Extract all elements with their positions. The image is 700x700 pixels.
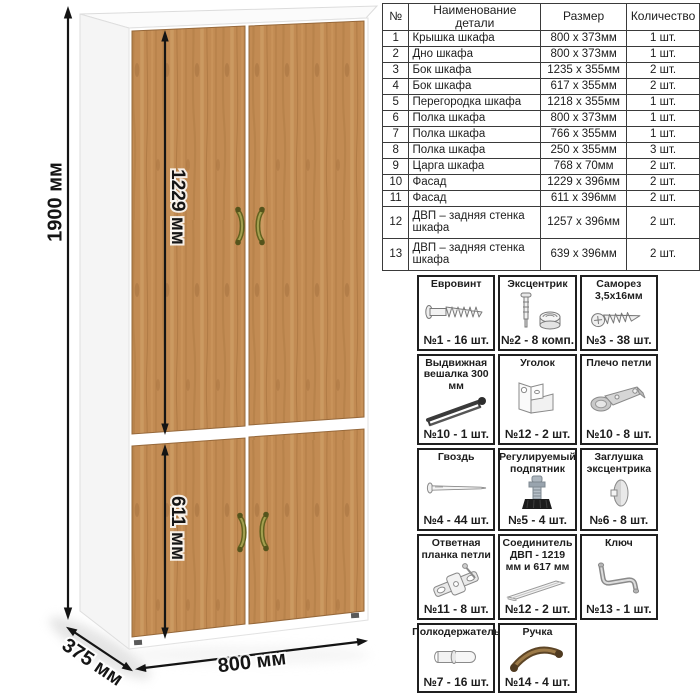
cabinet-side-panel bbox=[80, 14, 129, 649]
hardware-item-excentrik: Эксцентрик №2 - 8 комп. bbox=[498, 275, 576, 351]
part-name: Фасад bbox=[409, 190, 541, 206]
part-size: 617 x 355мм bbox=[541, 78, 627, 94]
table-row: 7 Полка шкафа 766 x 355мм 1 шт. bbox=[383, 126, 700, 142]
table-row: 3 Бок шкафа 1235 x 355мм 2 шт. bbox=[383, 62, 700, 78]
hardware-count: №2 - 8 комп. bbox=[501, 333, 574, 347]
table-row: 2 Дно шкафа 800 x 373мм 1 шт. bbox=[383, 46, 700, 62]
hardware-item-podpyatnik: Регулируемый подпятник №5 - 4 шт. bbox=[498, 448, 576, 532]
table-row: 5 Перегородка шкафа 1218 x 355мм 1 шт. bbox=[383, 94, 700, 110]
part-num: 7 bbox=[383, 126, 409, 142]
hardware-item-veshalka: Выдвижная вешалка 300 мм №10 - 1 шт. bbox=[417, 354, 495, 445]
shelf-pin-icon bbox=[420, 639, 492, 675]
hardware-count: №4 - 44 шт. bbox=[423, 513, 489, 527]
hardware-count: №13 - 1 шт. bbox=[586, 602, 652, 616]
part-num: 2 bbox=[383, 46, 409, 62]
part-qty: 1 шт. bbox=[627, 94, 700, 110]
hardware-count: №14 - 4 шт. bbox=[505, 675, 571, 689]
part-name: Царга шкафа bbox=[409, 158, 541, 174]
part-name: Фасад bbox=[409, 174, 541, 190]
part-num: 11 bbox=[383, 190, 409, 206]
part-qty: 1 шт. bbox=[627, 110, 700, 126]
part-name: Перегородка шкафа bbox=[409, 94, 541, 110]
hardware-count: №5 - 4 шт. bbox=[508, 513, 567, 527]
hardware-title: Эксцентрик bbox=[507, 279, 567, 291]
part-name: Крышка шкафа bbox=[409, 30, 541, 46]
table-row: 4 Бок шкафа 617 x 355мм 2 шт. bbox=[383, 78, 700, 94]
part-qty: 2 шт. bbox=[627, 190, 700, 206]
hardware-title: Ответная планка петли bbox=[420, 538, 492, 562]
nail-icon bbox=[420, 464, 492, 514]
part-size: 800 x 373мм bbox=[541, 46, 627, 62]
lower-right-door bbox=[249, 429, 364, 624]
part-size: 1229 x 396мм bbox=[541, 174, 627, 190]
pull-out-hanger-icon bbox=[420, 393, 492, 427]
part-num: 6 bbox=[383, 110, 409, 126]
part-qty: 1 шт. bbox=[627, 46, 700, 62]
table-row: 12 ДВП – задняя стенка шкафа 1257 x 396м… bbox=[383, 206, 700, 238]
part-name: Полка шкафа bbox=[409, 142, 541, 158]
corner-bracket-icon bbox=[501, 369, 573, 427]
hardware-title: Гвоздь bbox=[438, 452, 475, 464]
adjustable-foot-icon bbox=[501, 475, 573, 513]
part-num: 10 bbox=[383, 174, 409, 190]
part-num: 13 bbox=[383, 238, 409, 270]
hardware-count: №12 - 2 шт. bbox=[505, 427, 571, 441]
hardware-count: №12 - 2 шт. bbox=[505, 602, 571, 616]
upper-facade-label: 1229 мм bbox=[167, 169, 188, 245]
part-num: 9 bbox=[383, 158, 409, 174]
hardware-title: Выдвижная вешалка 300 мм bbox=[420, 358, 492, 393]
lower-facade-label: 611 мм bbox=[167, 496, 188, 560]
table-row: 10 Фасад 1229 x 396мм 2 шт. bbox=[383, 174, 700, 190]
cam-cover-icon bbox=[583, 475, 655, 513]
part-size: 766 x 355мм bbox=[541, 126, 627, 142]
hardware-item-eurovint: Евровинт №1 - 16 шт. bbox=[417, 275, 495, 351]
part-qty: 3 шт. bbox=[627, 142, 700, 158]
cabinet-foot bbox=[351, 613, 359, 619]
part-name: Полка шкафа bbox=[409, 126, 541, 142]
part-size: 611 x 396мм bbox=[541, 190, 627, 206]
hardware-item-soedinitel: Соединитель ДВП - 1219 мм и 617 мм №12 -… bbox=[498, 534, 576, 620]
hinge-arm-icon bbox=[583, 369, 655, 427]
hardware-count: №1 - 16 шт. bbox=[423, 333, 489, 347]
hardware-count: №11 - 8 шт. bbox=[424, 602, 489, 616]
header-num: № bbox=[383, 4, 409, 31]
part-num: 1 bbox=[383, 30, 409, 46]
hardware-count: №10 - 1 шт. bbox=[423, 427, 489, 441]
hardware-item-polkoderzhatel: Полкодержатель №7 - 16 шт. bbox=[417, 623, 495, 693]
hardware-title: Полкодержатель bbox=[412, 627, 500, 639]
part-name: Бок шкафа bbox=[409, 62, 541, 78]
hdf-connector-icon bbox=[501, 574, 573, 602]
part-qty: 1 шт. bbox=[627, 30, 700, 46]
upper-right-door bbox=[249, 21, 364, 425]
handle-icon bbox=[501, 639, 573, 675]
part-qty: 2 шт. bbox=[627, 174, 700, 190]
hardware-item-zaglushka: Заглушка эксцентрика №6 - 8 шт. bbox=[580, 448, 658, 532]
part-size: 768 x 70мм bbox=[541, 158, 627, 174]
part-size: 250 x 355мм bbox=[541, 142, 627, 158]
hardware-title: Саморез 3,5х16мм bbox=[583, 279, 655, 303]
part-size: 800 x 373мм bbox=[541, 30, 627, 46]
part-num: 4 bbox=[383, 78, 409, 94]
table-row: 13 ДВП – задняя стенка шкафа 639 x 396мм… bbox=[383, 238, 700, 270]
part-size: 639 x 396мм bbox=[541, 238, 627, 270]
part-num: 8 bbox=[383, 142, 409, 158]
part-size: 800 x 373мм bbox=[541, 110, 627, 126]
wardrobe-drawing: 1900 мм 1229 мм 611 мм 800 мм 375 мм bbox=[0, 0, 420, 700]
height-dimension: 1900 мм bbox=[44, 6, 72, 620]
part-size: 1218 x 355мм bbox=[541, 94, 627, 110]
hex-key-icon bbox=[583, 550, 655, 602]
table-row: 9 Царга шкафа 768 x 70мм 2 шт. bbox=[383, 158, 700, 174]
cabinet-foot bbox=[134, 640, 142, 646]
hardware-item-otvetnaya-planka: Ответная планка петли №11 - 8 шт. bbox=[417, 534, 495, 620]
part-qty: 1 шт. bbox=[627, 126, 700, 142]
hardware-item-gvozd: Гвоздь №4 - 44 шт. bbox=[417, 448, 495, 532]
hardware-item-ruchka: Ручка №14 - 4 шт. bbox=[498, 623, 576, 693]
part-name: ДВП – задняя стенка шкафа bbox=[409, 206, 541, 238]
hardware-title: Заглушка эксцентрика bbox=[583, 452, 655, 476]
hardware-count: №6 - 8 шт. bbox=[589, 513, 648, 527]
table-row: 8 Полка шкафа 250 x 355мм 3 шт. bbox=[383, 142, 700, 158]
hardware-count: №3 - 38 шт. bbox=[586, 333, 652, 347]
part-num: 5 bbox=[383, 94, 409, 110]
parts-table: № Наименование детали Размер Количество … bbox=[382, 3, 700, 271]
hardware-title: Ключ bbox=[605, 538, 633, 550]
hardware-item-klyuch: Ключ №13 - 1 шт. bbox=[580, 534, 658, 620]
hardware-item-samorez: Саморез 3,5х16мм №3 - 38 шт. bbox=[580, 275, 658, 351]
cam-lock-icon bbox=[501, 291, 573, 333]
hardware-item-plecho-petli: Плечо петли №10 - 8 шт. bbox=[580, 354, 658, 445]
part-num: 3 bbox=[383, 62, 409, 78]
part-qty: 2 шт. bbox=[627, 78, 700, 94]
part-qty: 2 шт. bbox=[627, 62, 700, 78]
part-size: 1257 x 396мм bbox=[541, 206, 627, 238]
hardware-count: №10 - 8 шт. bbox=[586, 427, 652, 441]
assembly-sheet: { "wardrobe": { "dimensions": { "height"… bbox=[0, 0, 700, 700]
header-size: Размер bbox=[541, 4, 627, 31]
hardware-grid: Евровинт №1 - 16 шт. Эксцентрик bbox=[417, 275, 658, 677]
part-qty: 2 шт. bbox=[627, 206, 700, 238]
hardware-title: Евровинт bbox=[431, 279, 482, 291]
part-qty: 2 шт. bbox=[627, 238, 700, 270]
part-name: Бок шкафа bbox=[409, 78, 541, 94]
table-row: 11 Фасад 611 x 396мм 2 шт. bbox=[383, 190, 700, 206]
self-tapping-screw-icon bbox=[583, 303, 655, 333]
hardware-title: Уголок bbox=[520, 358, 555, 370]
height-label: 1900 мм bbox=[44, 162, 66, 242]
part-num: 12 bbox=[383, 206, 409, 238]
header-qty: Количество bbox=[627, 4, 700, 31]
part-size: 1235 x 355мм bbox=[541, 62, 627, 78]
hinge-plate-icon bbox=[420, 562, 492, 602]
part-name: Полка шкафа bbox=[409, 110, 541, 126]
table-row: 6 Полка шкафа 800 x 373мм 1 шт. bbox=[383, 110, 700, 126]
part-name: Дно шкафа bbox=[409, 46, 541, 62]
part-qty: 2 шт. bbox=[627, 158, 700, 174]
euro-screw-icon bbox=[420, 291, 492, 333]
header-name: Наименование детали bbox=[409, 4, 541, 31]
hardware-title: Плечо петли bbox=[586, 358, 651, 370]
hardware-item-ugolok: Уголок №12 - 2 шт. bbox=[498, 354, 576, 445]
hardware-count: №7 - 16 шт. bbox=[423, 675, 489, 689]
hardware-title: Регулируемый подпятник bbox=[499, 452, 576, 476]
parts-table-header: № Наименование детали Размер Количество bbox=[383, 4, 700, 31]
part-name: ДВП – задняя стенка шкафа bbox=[409, 238, 541, 270]
hardware-title: Соединитель ДВП - 1219 мм и 617 мм bbox=[501, 538, 573, 573]
hardware-title: Ручка bbox=[522, 627, 552, 639]
table-row: 1 Крышка шкафа 800 x 373мм 1 шт. bbox=[383, 30, 700, 46]
